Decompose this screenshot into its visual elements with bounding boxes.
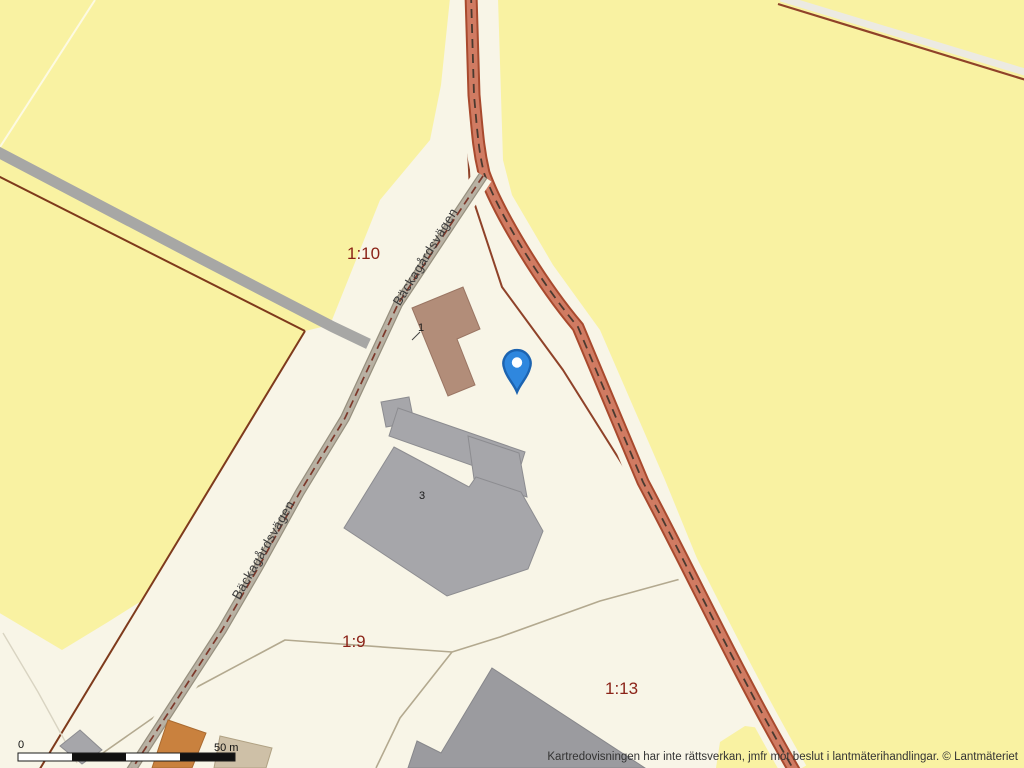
road-label-backagardsvagen-bottom: Bäckagårdsvägen [229,498,298,602]
location-pin[interactable] [503,350,530,392]
building-number-3: 3 [419,490,425,502]
field-parcel-east [498,0,1024,768]
parcel-label-1-10: 1:10 [347,244,380,263]
scale-segment [72,753,126,761]
scale-segment [180,753,235,761]
pin-hole-icon [512,357,522,367]
map-canvas[interactable]: 1:10 1:9 1:13 1 3 Bäckagårdsvägen Bäckag… [0,0,1024,768]
parcel-label-1-13: 1:13 [605,679,638,698]
scale-zero-label: 0 [18,739,24,751]
building-number-1: 1 [418,322,424,334]
map-viewport[interactable]: 1:10 1:9 1:13 1 3 Bäckagårdsvägen Bäckag… [0,0,1024,768]
building-1-leader-line [412,332,420,340]
attribution-text: Kartredovisningen har inte rättsverkan, … [547,751,1018,763]
scale-distance-label: 50 m [214,742,238,754]
pin-body-icon [503,350,530,392]
scale-segment [126,753,180,761]
scale-segment [18,753,72,761]
parcel-label-1-9: 1:9 [342,632,366,651]
building-1-house [412,287,480,396]
